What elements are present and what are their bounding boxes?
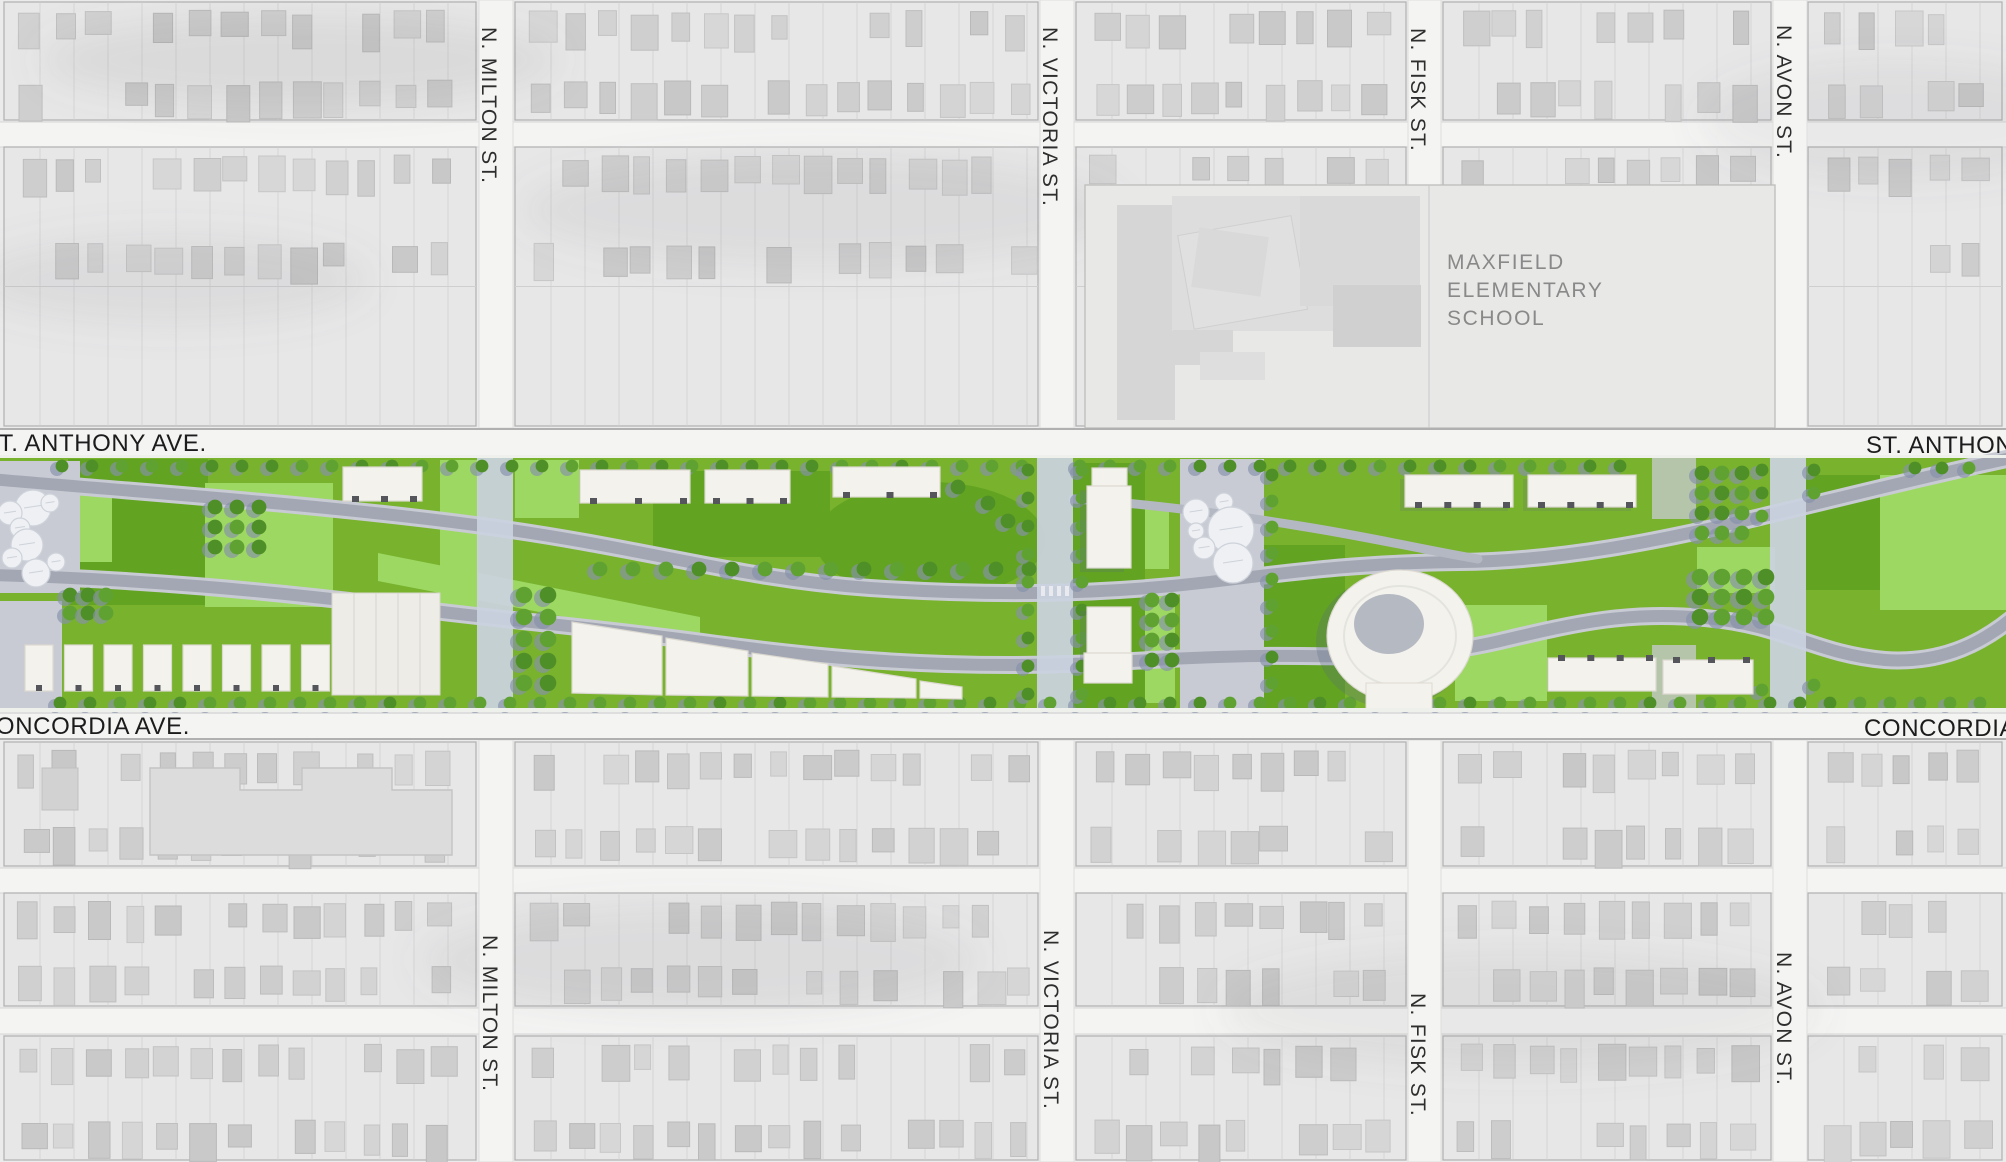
- tree: [857, 562, 872, 577]
- tree: [474, 697, 487, 710]
- house: [971, 755, 991, 781]
- greenway-corridor: [0, 455, 2006, 713]
- tree: [1022, 632, 1035, 645]
- house: [259, 156, 286, 192]
- house: [153, 159, 181, 189]
- house: [1299, 1125, 1327, 1155]
- entry-tick: [1444, 502, 1451, 508]
- house: [431, 243, 447, 275]
- entry-tick: [713, 498, 720, 504]
- house: [89, 829, 107, 851]
- house: [1599, 901, 1624, 939]
- tree: [1735, 466, 1750, 481]
- tree: [1674, 697, 1687, 710]
- house: [1261, 753, 1284, 791]
- row-house: [144, 645, 172, 691]
- tree: [86, 460, 99, 473]
- house: [532, 1048, 553, 1077]
- school-label-line-1: MAXFIELD: [1447, 251, 1565, 274]
- house: [1127, 85, 1153, 114]
- tree: [1963, 462, 1976, 475]
- house: [872, 829, 894, 852]
- house: [835, 750, 859, 776]
- house: [1598, 158, 1614, 182]
- tree: [1022, 604, 1035, 617]
- tree: [986, 460, 999, 473]
- lawn-panel: [1145, 503, 1169, 569]
- tree: [1022, 576, 1035, 589]
- tree: [1736, 589, 1753, 606]
- house: [1566, 159, 1590, 184]
- tree: [894, 697, 907, 710]
- entry-tick: [234, 685, 240, 691]
- tree: [1022, 688, 1035, 701]
- tree: [516, 631, 533, 648]
- tree: [1022, 464, 1035, 477]
- tree: [984, 697, 997, 710]
- house: [1161, 1122, 1188, 1146]
- tree: [1266, 651, 1279, 664]
- house: [1458, 906, 1476, 939]
- canopy-tree: [47, 553, 65, 571]
- house: [600, 82, 616, 113]
- house: [121, 754, 140, 780]
- house: [1163, 752, 1191, 778]
- house: [89, 902, 111, 940]
- tree: [1714, 589, 1731, 606]
- house: [431, 1047, 457, 1077]
- path-stub: [1652, 455, 1696, 519]
- tree: [1314, 697, 1327, 710]
- house: [1701, 903, 1717, 935]
- house: [259, 1045, 279, 1076]
- building-slab: [343, 467, 422, 501]
- house: [1891, 1122, 1913, 1148]
- house: [975, 1123, 992, 1159]
- entry-tick: [1617, 655, 1624, 661]
- house: [570, 1124, 595, 1149]
- house: [1929, 753, 1948, 780]
- house: [1365, 904, 1383, 926]
- house: [190, 1124, 217, 1162]
- tree: [206, 460, 219, 473]
- entry-tick: [680, 498, 687, 504]
- house: [1300, 902, 1327, 933]
- house: [426, 1125, 447, 1162]
- house: [258, 754, 277, 783]
- house: [773, 1045, 788, 1074]
- tree: [1554, 697, 1567, 710]
- house: [1929, 901, 1947, 932]
- maxfield-school-block: [1085, 185, 1775, 428]
- house: [669, 1046, 689, 1080]
- house: [1492, 1121, 1511, 1159]
- house: [1731, 1124, 1756, 1150]
- tree: [1165, 633, 1180, 648]
- tree: [890, 562, 905, 577]
- house: [1630, 1126, 1646, 1160]
- house: [365, 904, 384, 936]
- house: [1699, 828, 1722, 866]
- tree: [252, 520, 267, 535]
- house: [1828, 753, 1853, 782]
- entry-tick: [115, 685, 121, 691]
- row-house: [223, 645, 251, 691]
- house: [1957, 750, 1978, 782]
- house: [365, 1044, 382, 1071]
- school-building-wing: [1200, 352, 1265, 380]
- entry-tick: [635, 498, 642, 504]
- house: [90, 966, 116, 1002]
- house: [1008, 968, 1030, 995]
- house: [566, 830, 582, 858]
- house: [19, 85, 42, 121]
- house: [191, 1049, 213, 1079]
- house: [1632, 902, 1649, 938]
- house: [1226, 1120, 1244, 1151]
- house: [125, 967, 149, 995]
- tree: [1266, 521, 1279, 534]
- tree: [1224, 460, 1237, 473]
- tree: [81, 588, 96, 603]
- school-building-wing: [1333, 285, 1421, 347]
- tree: [1434, 460, 1447, 473]
- house: [1728, 829, 1753, 864]
- entry-tick: [1503, 502, 1510, 508]
- canopy-tree: [41, 494, 59, 512]
- house: [394, 155, 410, 183]
- entry-tick: [1538, 502, 1545, 508]
- tree: [266, 460, 279, 473]
- house: [668, 1122, 690, 1147]
- tree: [804, 697, 817, 710]
- canopy-tree: [22, 559, 50, 587]
- house: [1193, 158, 1210, 180]
- house: [1225, 904, 1253, 927]
- house: [702, 85, 728, 117]
- house: [1231, 832, 1258, 864]
- house: [1628, 750, 1655, 779]
- tree: [1022, 492, 1035, 505]
- tree: [540, 587, 557, 604]
- house: [672, 13, 690, 41]
- house: [1126, 754, 1150, 784]
- tree: [1808, 487, 1821, 500]
- house: [122, 1122, 142, 1159]
- tree: [1715, 486, 1730, 501]
- street-label-victoria-bottom: N. VICTORIA ST.: [1039, 930, 1062, 1110]
- house: [1158, 831, 1181, 862]
- house: [1896, 11, 1924, 46]
- school-building-wing: [1117, 205, 1175, 420]
- row-house: [262, 645, 290, 691]
- tree: [234, 697, 247, 710]
- crossing-milton: [477, 455, 513, 712]
- house: [1332, 85, 1350, 111]
- house: [1824, 1126, 1851, 1162]
- house: [1328, 10, 1352, 47]
- house: [599, 11, 617, 36]
- tree: [1554, 460, 1567, 473]
- school-building-wing: [1191, 227, 1269, 296]
- house: [126, 1049, 149, 1078]
- street-label-fisk-top: N. FISK ST.: [1406, 28, 1429, 152]
- house: [395, 755, 412, 785]
- tree: [114, 697, 127, 710]
- house: [1464, 11, 1490, 46]
- house: [1226, 82, 1242, 107]
- tree: [63, 588, 78, 603]
- tree: [1076, 464, 1089, 477]
- canopy-tree: [1213, 543, 1253, 583]
- house: [395, 902, 412, 931]
- tree: [1164, 460, 1177, 473]
- house: [228, 1125, 251, 1147]
- tree: [204, 697, 217, 710]
- house: [531, 84, 550, 112]
- tower-body: [1087, 486, 1131, 568]
- avenue-band: [0, 712, 2006, 740]
- tree: [1644, 697, 1657, 710]
- house: [1664, 10, 1684, 39]
- house: [668, 754, 690, 789]
- house: [1097, 85, 1119, 116]
- house: [1011, 1123, 1026, 1157]
- tree: [1434, 697, 1447, 710]
- tree: [1714, 569, 1731, 586]
- tree: [252, 540, 267, 555]
- tree: [81, 606, 96, 621]
- tree: [384, 697, 397, 710]
- tree: [744, 697, 757, 710]
- house: [1492, 901, 1516, 928]
- tree: [516, 587, 533, 604]
- tree: [208, 500, 223, 515]
- house: [1006, 16, 1025, 51]
- tree: [540, 609, 557, 626]
- house: [1362, 85, 1387, 115]
- house: [1333, 1125, 1361, 1150]
- house: [940, 85, 965, 118]
- house: [53, 828, 75, 866]
- tree: [1044, 697, 1057, 710]
- tree: [1736, 569, 1753, 586]
- tree: [791, 562, 806, 577]
- house: [1896, 831, 1912, 855]
- tree: [1756, 510, 1769, 523]
- house: [604, 755, 629, 784]
- entry-tick: [1673, 657, 1680, 663]
- house: [1627, 826, 1645, 859]
- house: [1531, 83, 1555, 117]
- tree: [1715, 466, 1730, 481]
- street-label-avon-bottom: N. AVON ST.: [1772, 952, 1795, 1086]
- house: [1130, 1050, 1148, 1075]
- tree: [326, 460, 339, 473]
- tree: [1524, 460, 1537, 473]
- tree: [654, 697, 667, 710]
- building-slab: [1548, 658, 1656, 691]
- tree: [593, 562, 608, 577]
- tree: [956, 460, 969, 473]
- house: [1163, 84, 1182, 116]
- house: [18, 13, 39, 49]
- tree: [1758, 609, 1775, 626]
- house: [1160, 968, 1184, 1004]
- entry-tick: [1626, 502, 1633, 508]
- house: [51, 1049, 72, 1085]
- house: [1233, 1048, 1260, 1073]
- house: [870, 13, 889, 37]
- house: [1260, 826, 1288, 851]
- house: [772, 16, 787, 39]
- house: [972, 905, 988, 937]
- house: [771, 752, 787, 776]
- house: [1329, 902, 1345, 939]
- tree: [116, 460, 129, 473]
- tree: [1824, 697, 1837, 710]
- house: [293, 159, 315, 191]
- entry-tick: [747, 498, 754, 504]
- avenue-label-st-anthony-east: ST. ANTHONY AVE.: [1866, 432, 2006, 459]
- house: [534, 1121, 556, 1151]
- tree: [1145, 633, 1160, 648]
- house: [906, 11, 922, 47]
- entry-tick: [381, 496, 388, 502]
- entry-tick: [1646, 655, 1653, 661]
- house: [1259, 12, 1285, 45]
- tree: [324, 697, 337, 710]
- corridor-frame-top: [0, 455, 2006, 458]
- house: [1195, 903, 1216, 936]
- shade-blob: [520, 155, 1120, 265]
- house: [53, 1124, 72, 1148]
- tree: [516, 675, 533, 692]
- house: [1927, 971, 1951, 1005]
- house: [223, 157, 247, 181]
- tree: [594, 697, 607, 710]
- tree: [1756, 487, 1769, 500]
- house: [806, 829, 830, 860]
- house: [1661, 158, 1680, 182]
- tree: [208, 540, 223, 555]
- tree: [296, 460, 309, 473]
- tree: [414, 697, 427, 710]
- tree: [1524, 697, 1537, 710]
- house: [1827, 827, 1845, 863]
- tree: [1614, 697, 1627, 710]
- house: [397, 1050, 424, 1084]
- pavilion-entry-wing: [1366, 683, 1432, 709]
- house: [1862, 902, 1886, 935]
- tree: [1284, 697, 1297, 710]
- house: [1095, 13, 1121, 40]
- house: [734, 754, 751, 777]
- entry-tick: [1597, 502, 1604, 508]
- tree: [1692, 589, 1709, 606]
- house: [806, 85, 827, 116]
- house: [1628, 13, 1653, 42]
- house: [1924, 1045, 1943, 1079]
- house: [636, 829, 655, 852]
- tree: [834, 697, 847, 710]
- house: [1564, 903, 1585, 934]
- tree: [1254, 460, 1267, 473]
- house: [1700, 1123, 1716, 1159]
- tree: [1695, 526, 1710, 541]
- house: [426, 751, 450, 785]
- entry-tick: [930, 492, 937, 498]
- tree: [1808, 464, 1821, 477]
- house: [1327, 158, 1354, 184]
- tree: [824, 562, 839, 577]
- tree: [99, 606, 114, 621]
- house: [223, 1050, 242, 1082]
- house: [735, 15, 755, 52]
- tree: [566, 460, 579, 473]
- tree: [1104, 697, 1117, 710]
- house: [1559, 81, 1581, 106]
- tree: [146, 460, 159, 473]
- tree: [1266, 573, 1279, 586]
- tree: [236, 460, 249, 473]
- house: [1923, 1121, 1950, 1159]
- house: [970, 82, 994, 113]
- house: [768, 81, 789, 114]
- house: [153, 1047, 178, 1076]
- entry-tick: [1743, 657, 1750, 663]
- house: [361, 968, 377, 995]
- tree: [1808, 679, 1821, 692]
- tree: [1145, 653, 1160, 668]
- tree: [1344, 460, 1357, 473]
- entry-tick: [1474, 502, 1481, 508]
- house: [665, 81, 691, 115]
- house: [1662, 752, 1678, 775]
- house: [1889, 905, 1912, 938]
- row-house: [25, 645, 53, 691]
- house: [769, 831, 797, 858]
- house: [157, 1124, 178, 1150]
- lawn-panel: [1880, 475, 2006, 610]
- tree: [504, 697, 517, 710]
- tree: [1715, 506, 1730, 521]
- house: [940, 829, 968, 866]
- house: [1961, 971, 1988, 1002]
- tree: [1758, 589, 1775, 606]
- house: [54, 907, 75, 933]
- school-label-line-2: ELEMENTARY: [1447, 279, 1603, 302]
- house: [1096, 752, 1114, 782]
- tree: [56, 460, 69, 473]
- house: [120, 828, 143, 859]
- tree: [956, 562, 971, 577]
- house: [1730, 903, 1749, 926]
- tree: [534, 697, 547, 710]
- tree: [1145, 593, 1160, 608]
- house: [1365, 832, 1392, 862]
- tree: [1494, 460, 1507, 473]
- tree: [774, 697, 787, 710]
- house: [1367, 12, 1390, 35]
- house: [17, 902, 37, 939]
- house: [734, 1050, 760, 1081]
- tree: [252, 500, 267, 515]
- row-house: [104, 645, 132, 691]
- house: [1492, 11, 1516, 36]
- tree: [626, 562, 641, 577]
- house: [1859, 1047, 1876, 1072]
